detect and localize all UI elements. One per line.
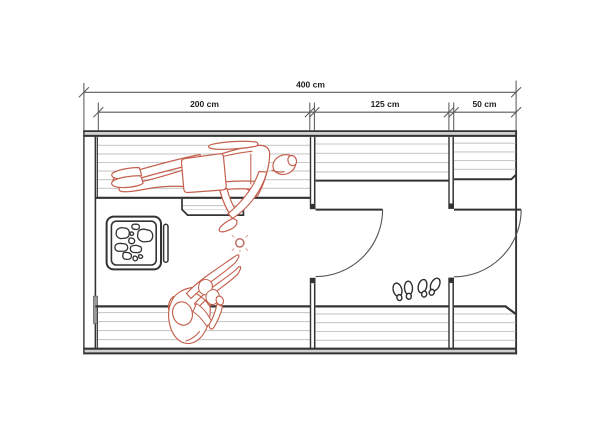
svg-text:200 cm: 200 cm	[190, 99, 219, 109]
svg-text:50 cm: 50 cm	[472, 99, 497, 109]
svg-text:125 cm: 125 cm	[371, 99, 400, 109]
svg-text:400 cm: 400 cm	[296, 80, 325, 90]
